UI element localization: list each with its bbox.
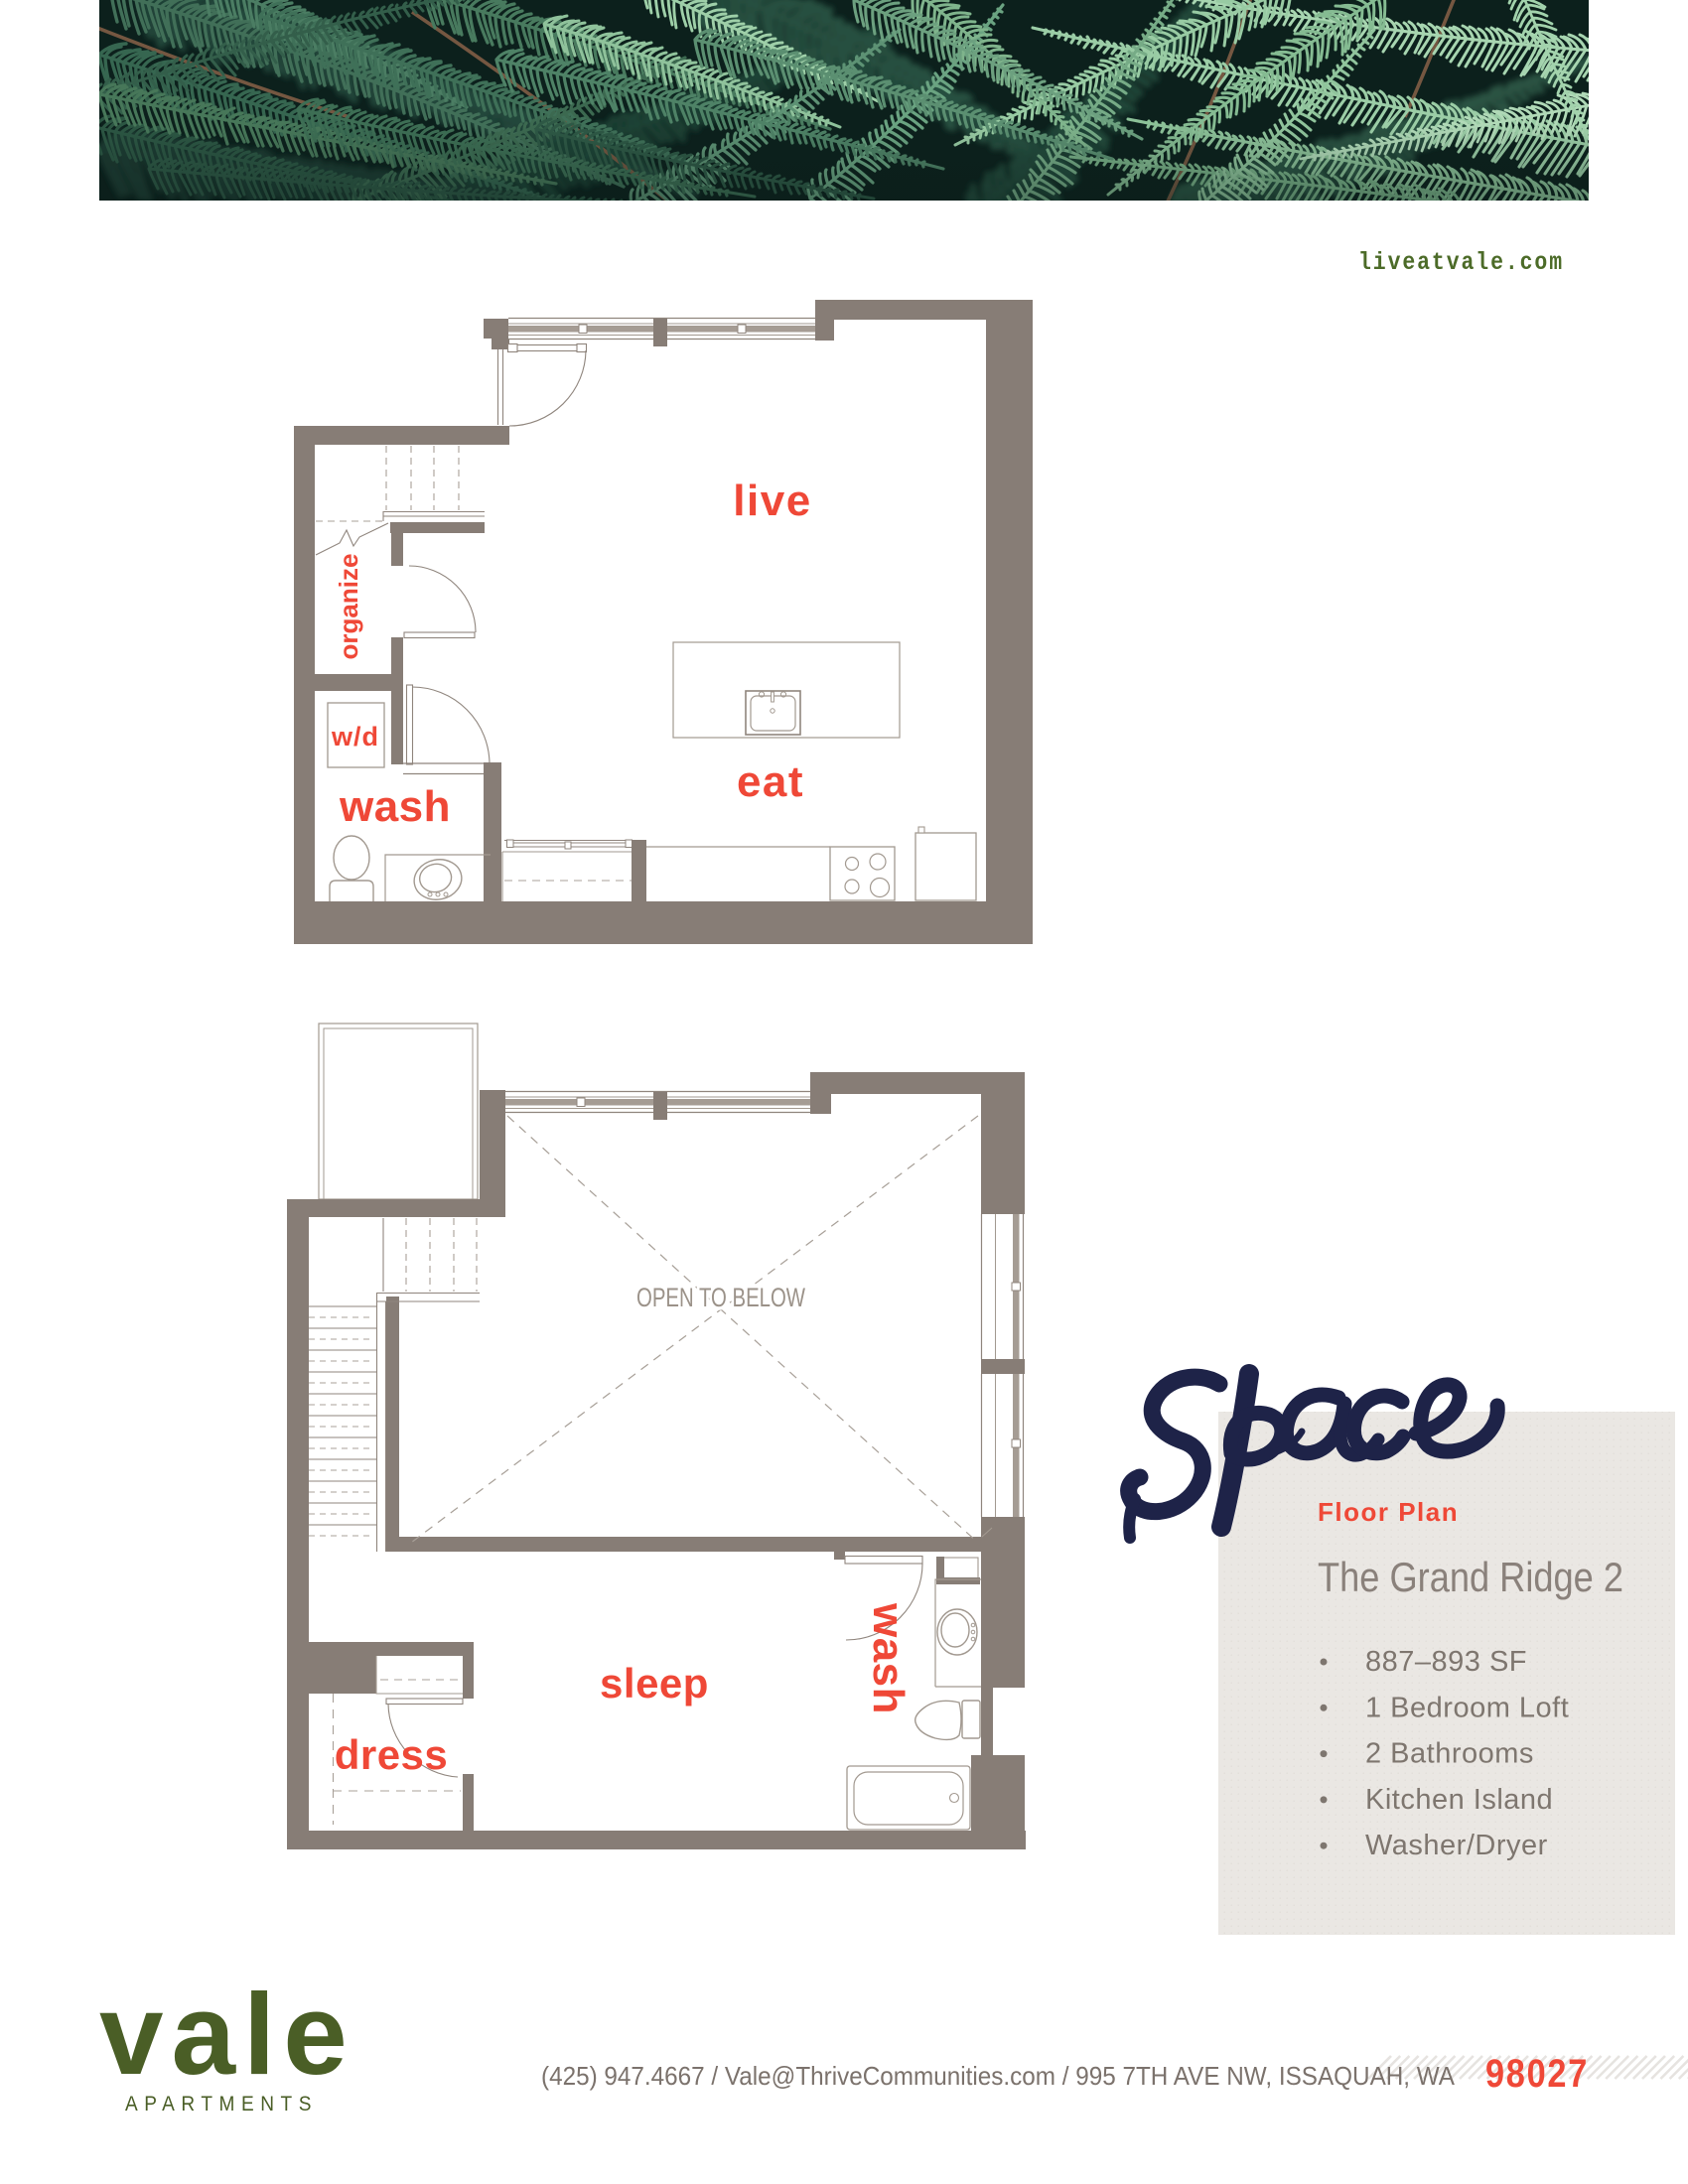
svg-text:Washer/Dryer: Washer/Dryer: [1365, 1830, 1548, 1861]
svg-text:wash: wash: [864, 1602, 913, 1714]
svg-text:sleep: sleep: [600, 1660, 709, 1706]
svg-text:2 Bathrooms: 2 Bathrooms: [1365, 1738, 1534, 1770]
svg-text:eat: eat: [737, 757, 804, 806]
svg-text:Kitchen Island: Kitchen Island: [1365, 1784, 1553, 1816]
svg-text:1 Bedroom Loft: 1 Bedroom Loft: [1365, 1692, 1569, 1723]
svg-text:(425) 947.4667 / Vale@Thrive: (425) 947.4667 / Vale@ThriveCommunities.…: [541, 2061, 1456, 2091]
svg-text:dress: dress: [335, 1731, 449, 1778]
svg-text:The Grand Ridge 2: The Grand Ridge 2: [1318, 1554, 1623, 1600]
svg-text:w/d: w/d: [331, 722, 379, 751]
svg-text:98027: 98027: [1485, 2052, 1589, 2096]
svg-text:APARTMENTS: APARTMENTS: [125, 2093, 318, 2116]
svg-text:OPEN TO BELOW: OPEN TO BELOW: [636, 1283, 805, 1312]
svg-text:Floor Plan: Floor Plan: [1318, 1497, 1459, 1527]
svg-text:liveatvale.com: liveatvale.com: [1358, 248, 1564, 277]
svg-text:wash: wash: [339, 782, 451, 831]
svg-text:vale: vale: [99, 1970, 355, 2099]
svg-text:live: live: [733, 477, 811, 525]
svg-text:887–893 SF: 887–893 SF: [1365, 1646, 1527, 1678]
svg-text:organize: organize: [334, 554, 363, 660]
